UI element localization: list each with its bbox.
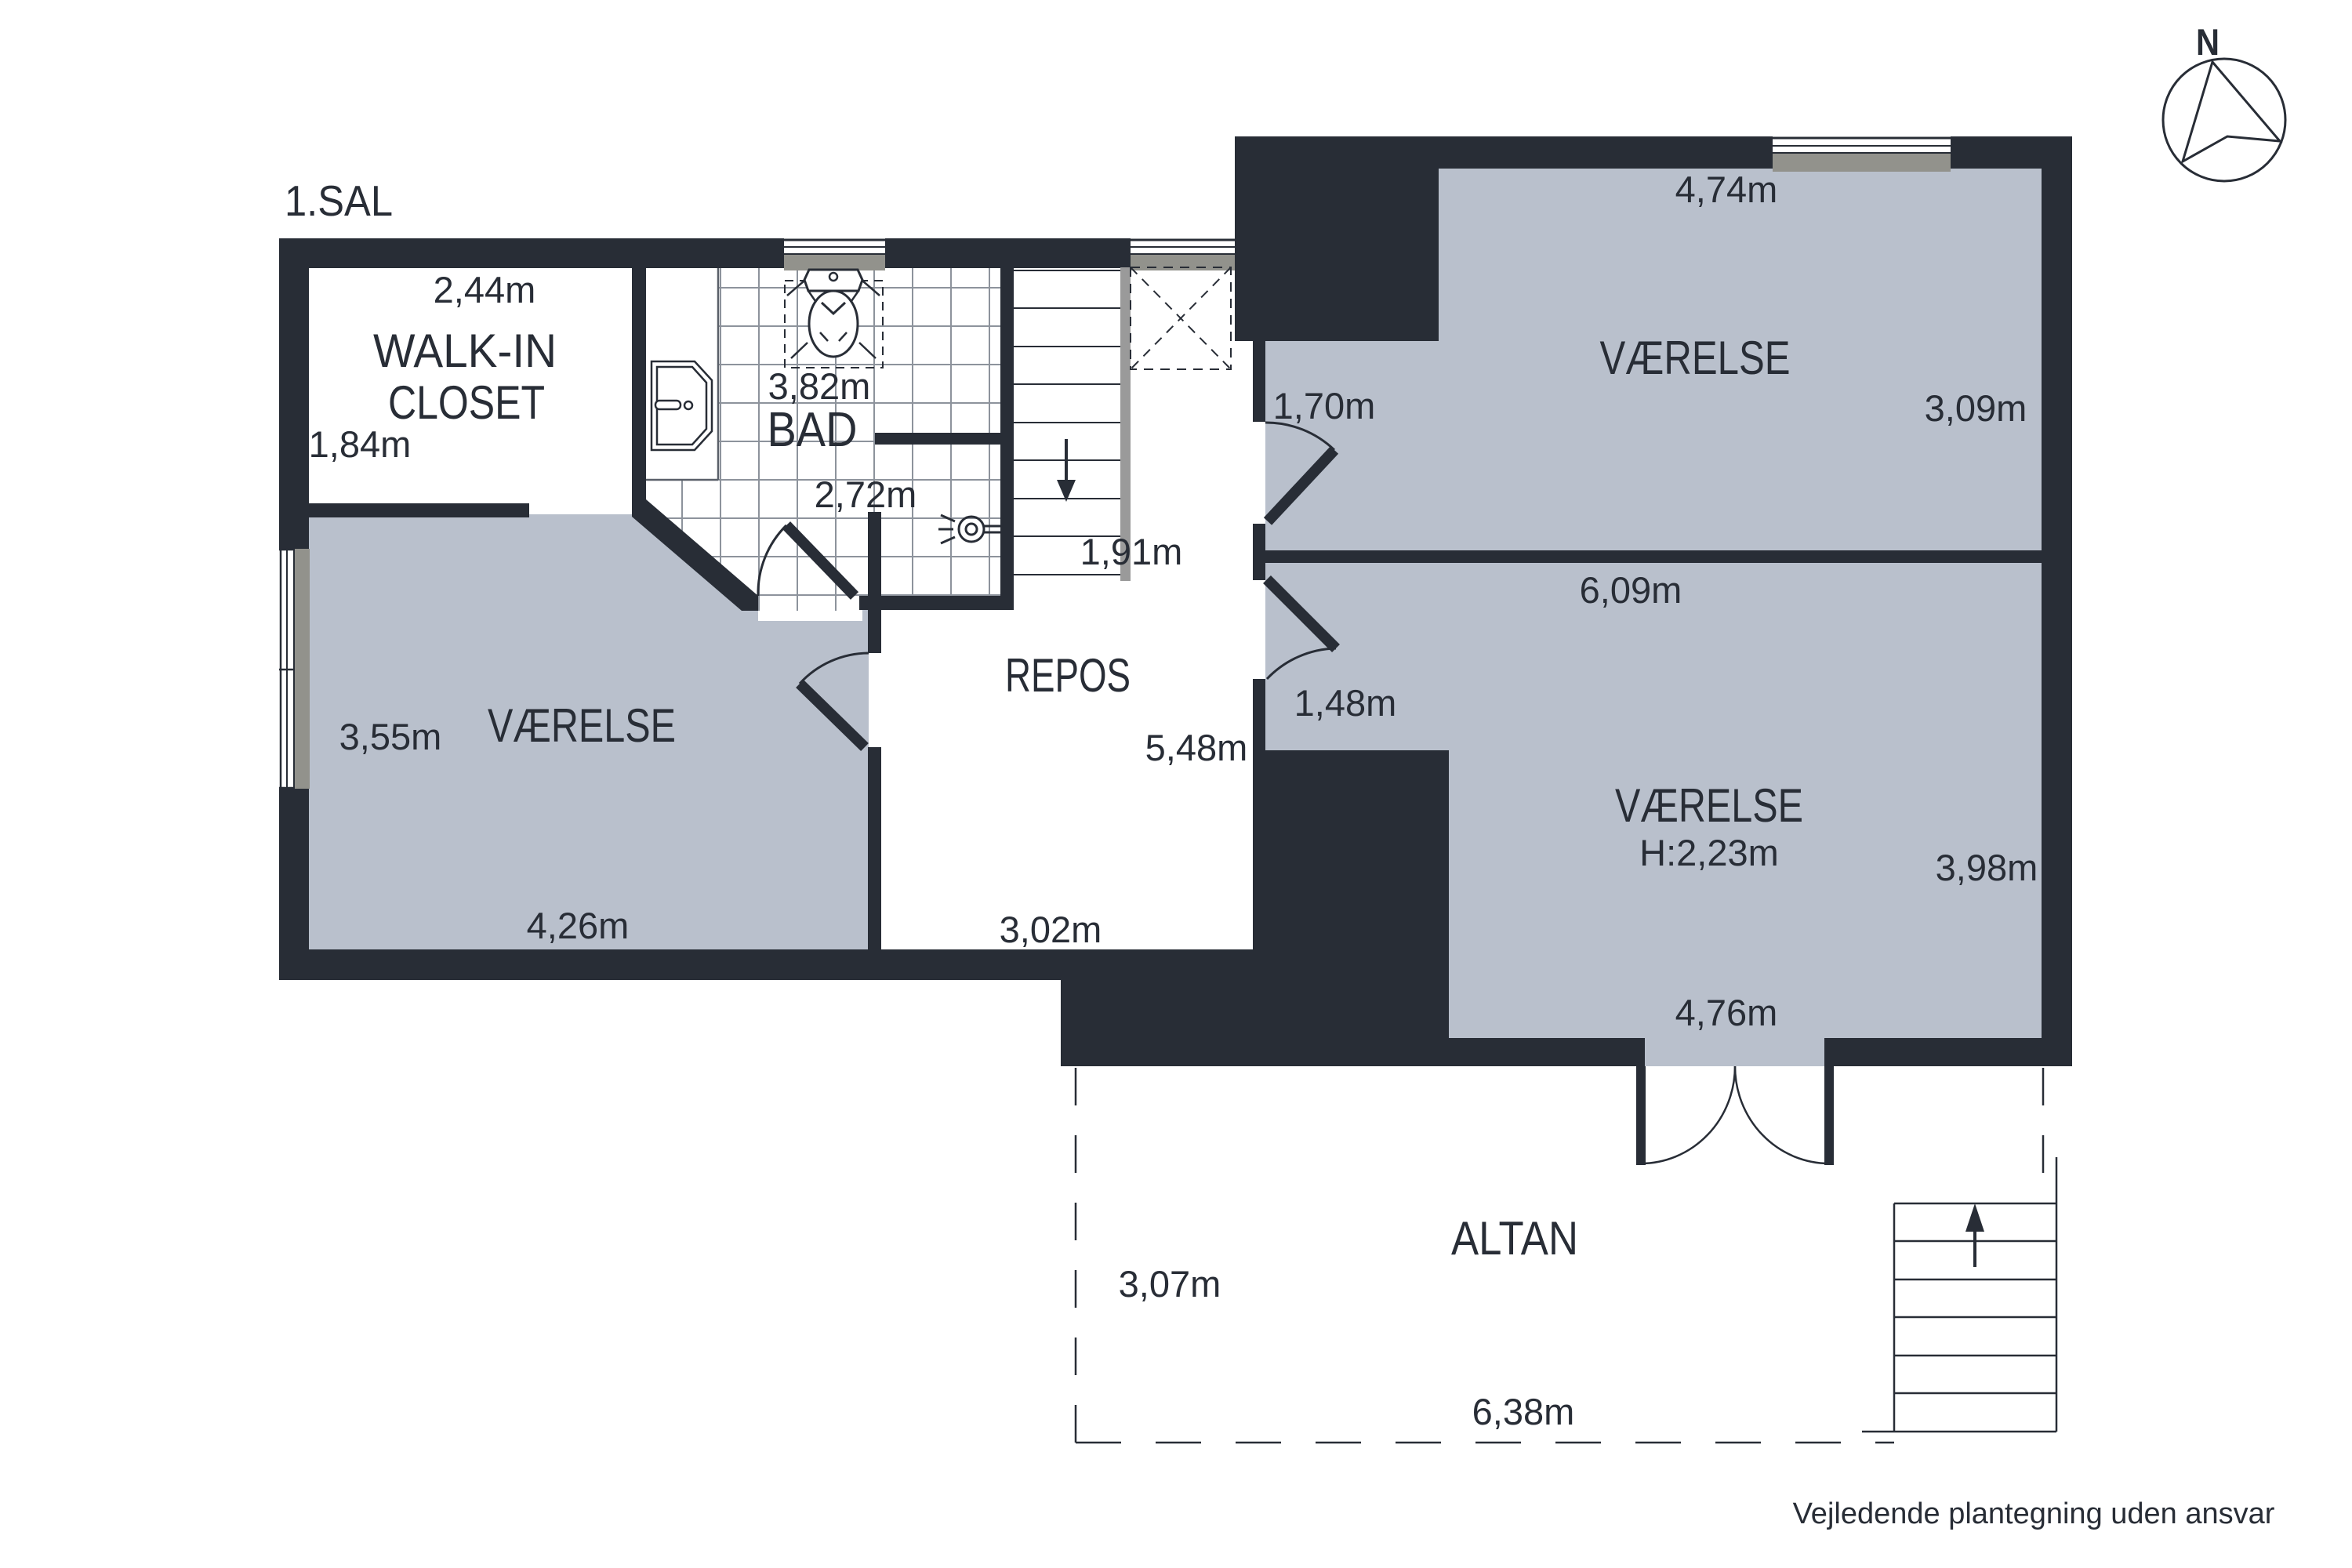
svg-text:2,72m: 2,72m (815, 474, 917, 515)
svg-text:5,48m: 5,48m (1145, 727, 1248, 768)
svg-text:VÆRELSE: VÆRELSE (1615, 779, 1803, 832)
svg-text:REPOS: REPOS (1005, 649, 1131, 702)
svg-text:3,55m: 3,55m (339, 716, 442, 757)
svg-text:1,48m: 1,48m (1294, 682, 1397, 724)
svg-text:CLOSET: CLOSET (388, 376, 545, 429)
svg-text:1,91m: 1,91m (1080, 531, 1183, 572)
svg-text:3,07m: 3,07m (1119, 1263, 1221, 1305)
svg-text:6,09m: 6,09m (1580, 569, 1682, 611)
svg-text:VÆRELSE: VÆRELSE (488, 699, 676, 752)
svg-text:1,70m: 1,70m (1273, 385, 1376, 426)
svg-text:3,02m: 3,02m (1000, 909, 1102, 950)
svg-text:WALK-IN: WALK-IN (373, 325, 557, 377)
svg-text:3,82m: 3,82m (768, 365, 871, 407)
svg-text:VÆRELSE: VÆRELSE (1600, 332, 1791, 384)
svg-text:H:2,23m: H:2,23m (1639, 832, 1779, 873)
svg-text:ALTAN: ALTAN (1451, 1212, 1578, 1265)
svg-text:2,44m: 2,44m (434, 269, 536, 310)
svg-text:6,38m: 6,38m (1472, 1391, 1575, 1432)
svg-text:N: N (2196, 21, 2220, 63)
svg-text:BAD: BAD (768, 403, 858, 457)
svg-text:Vejledende plantegning uden an: Vejledende plantegning uden ansvar (1793, 1497, 2275, 1530)
svg-text:4,74m: 4,74m (1675, 169, 1778, 210)
svg-text:1,84m: 1,84m (309, 423, 412, 465)
svg-text:3,98m: 3,98m (1936, 847, 2038, 888)
svg-text:1.SAL: 1.SAL (285, 176, 393, 225)
svg-text:3,09m: 3,09m (1925, 387, 2027, 429)
svg-text:4,26m: 4,26m (527, 905, 630, 946)
svg-text:4,76m: 4,76m (1675, 992, 1778, 1033)
